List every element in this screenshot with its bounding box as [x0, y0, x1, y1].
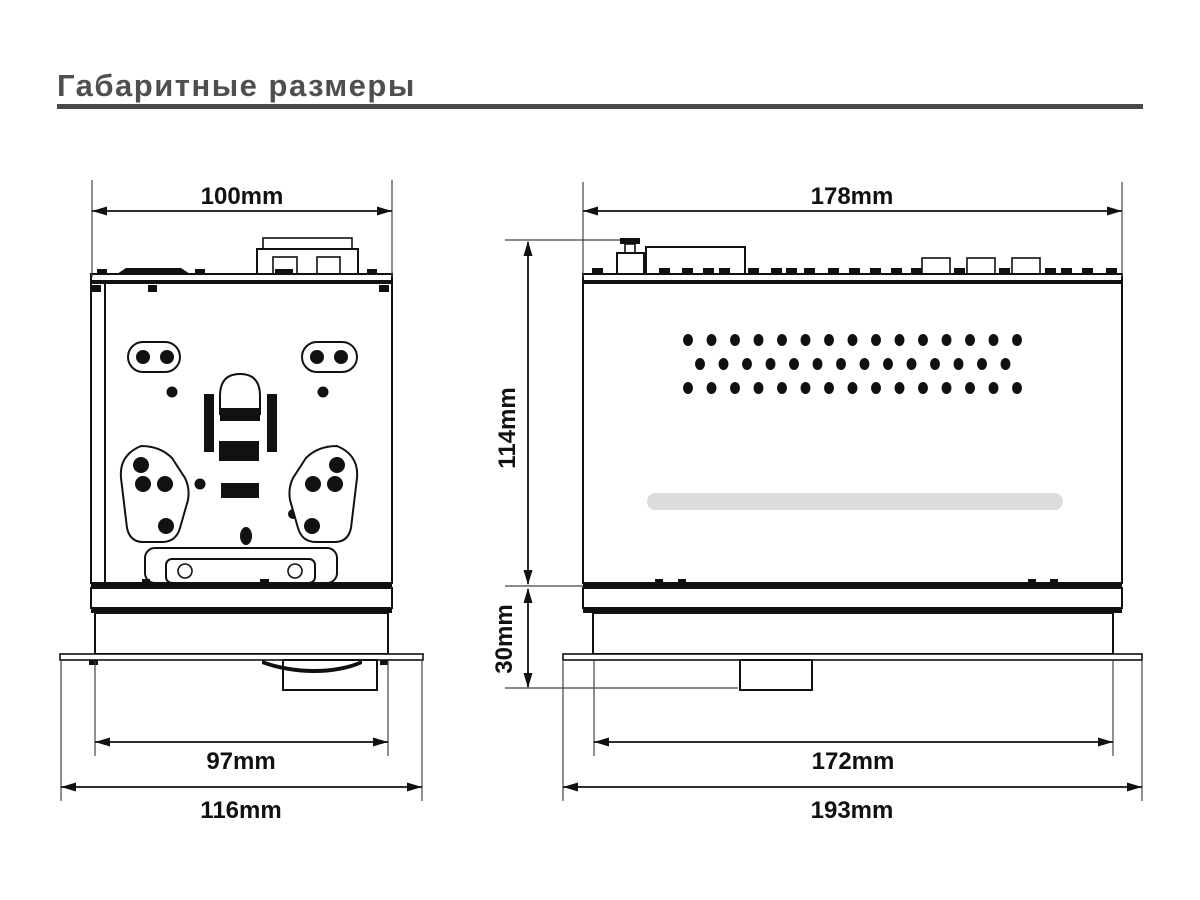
vent-hole [707, 382, 717, 394]
chassis-outline [583, 283, 1122, 583]
vent-hole [836, 358, 846, 370]
vent-hole [918, 382, 928, 394]
screw-hole [334, 350, 348, 364]
vent-hole [883, 358, 893, 370]
oval-hole [240, 527, 252, 545]
vent-hole [777, 382, 787, 394]
screw-hole [160, 350, 174, 364]
vent-hole [1012, 382, 1022, 394]
vent-hole [954, 358, 964, 370]
side-view [563, 238, 1142, 690]
vent-hole [813, 358, 823, 370]
bracket-hole [178, 564, 192, 578]
screw-hole [195, 479, 206, 490]
bracket-hole [288, 564, 302, 578]
vent-hole [989, 382, 999, 394]
tab [89, 660, 98, 665]
vent-hole [801, 334, 811, 346]
vent-hole [766, 358, 776, 370]
top-edge [583, 274, 1122, 281]
vent-hole [871, 382, 881, 394]
top-block [1012, 258, 1040, 274]
mech-rail [204, 394, 214, 452]
top-block [967, 258, 995, 274]
vent-hole [707, 334, 717, 346]
top-block [922, 258, 950, 274]
mech-rail [267, 394, 277, 452]
top-edge [91, 274, 392, 281]
vent-hole [730, 382, 740, 394]
vent-hole [848, 382, 858, 394]
vent-hole [1001, 358, 1011, 370]
vent-hole [824, 382, 834, 394]
dim-label-97mm: 97mm [206, 748, 275, 775]
vent-hole [989, 334, 999, 346]
vent-hole [930, 358, 940, 370]
dim-label-100mm: 100mm [201, 183, 284, 210]
antenna-base [617, 253, 644, 274]
vent-hole [777, 334, 787, 346]
screw-hole [327, 476, 343, 492]
vent-hole [824, 334, 834, 346]
vent-hole [848, 334, 858, 346]
vent-hole [895, 382, 905, 394]
vent-hole [965, 334, 975, 346]
dimension-drawing: 100mm 97mm 116mm 178mm [0, 0, 1200, 900]
dim-label-172mm: 172mm [812, 748, 895, 775]
side-slot [647, 493, 1063, 510]
vent-hole [895, 334, 905, 346]
connector-body [257, 249, 358, 274]
screw-hole [167, 387, 178, 398]
screw-hole [318, 387, 329, 398]
vent-hole [871, 334, 881, 346]
tab [148, 285, 157, 292]
vent-hole [683, 382, 693, 394]
vent-hole [730, 334, 740, 346]
trim-plate [563, 654, 1142, 660]
bezel [583, 588, 1122, 608]
connector-pin [317, 257, 340, 274]
dim-label-193mm: 193mm [811, 797, 894, 824]
mech-bar [220, 408, 260, 421]
vent-hole [683, 334, 693, 346]
vent-hole [918, 334, 928, 346]
top-view [60, 238, 423, 690]
bezel [91, 588, 392, 608]
dim-label-178mm: 178mm [811, 183, 894, 210]
nose-sleeve [593, 613, 1113, 654]
screw-hole [133, 457, 149, 473]
vent-hole [754, 382, 764, 394]
dim-label-116mm: 116mm [200, 797, 281, 824]
screw-hole [304, 518, 320, 534]
screw-hole [329, 457, 345, 473]
faceplate-box [283, 660, 377, 690]
screw-hole [135, 476, 151, 492]
vent-hole [965, 382, 975, 394]
vent-hole [860, 358, 870, 370]
connector-top [263, 238, 352, 249]
vent-hole [742, 358, 752, 370]
screw-hole [310, 350, 324, 364]
tab [380, 660, 388, 665]
dimension-side-sleeve-width: 172mm [594, 661, 1113, 775]
dim-label-114mm: 114mm [494, 387, 521, 468]
vent-hole [942, 334, 952, 346]
screw-hole [136, 350, 150, 364]
screw-hole [305, 476, 321, 492]
vent-hole [801, 382, 811, 394]
faceplate-box [740, 660, 812, 690]
vent-hole [942, 382, 952, 394]
vent-hole [789, 358, 799, 370]
mech-bar [219, 441, 259, 461]
vent-hole [695, 358, 705, 370]
tab [379, 285, 389, 292]
vent-hole [754, 334, 764, 346]
vent-hole [719, 358, 729, 370]
vent-hole [1012, 334, 1022, 346]
tab [92, 285, 101, 292]
dimensions-page: Габаритные размеры [0, 0, 1200, 900]
screw-hole [158, 518, 174, 534]
screw-hole [157, 476, 173, 492]
vent-hole [907, 358, 917, 370]
nose-sleeve [95, 613, 388, 654]
mech-bar [221, 483, 259, 498]
dim-label-30mm: 30mm [491, 604, 518, 673]
vent-hole [977, 358, 987, 370]
antenna-cap [620, 238, 640, 244]
